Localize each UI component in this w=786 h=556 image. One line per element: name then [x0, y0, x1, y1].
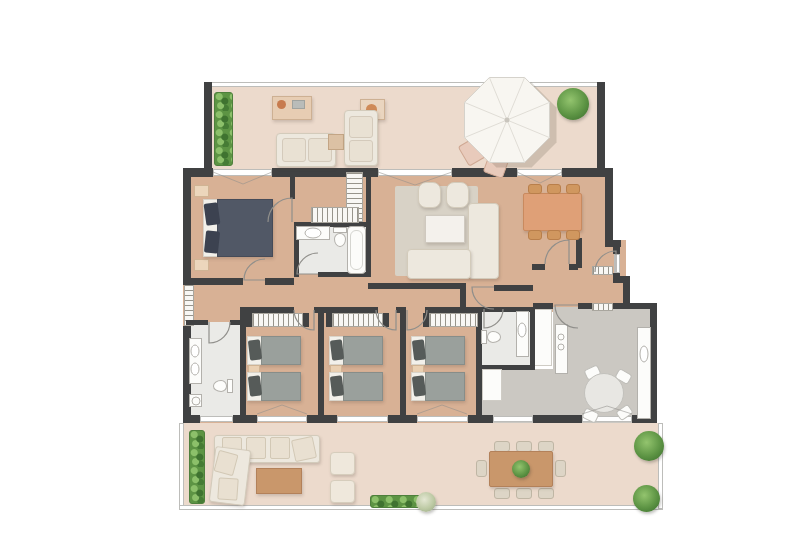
dining-chair-4	[528, 230, 542, 240]
wall-bot-3	[307, 415, 337, 423]
bd2-bedA-pillow	[248, 339, 262, 360]
terrace-top-floor	[205, 86, 605, 170]
dining-chair-5	[547, 230, 561, 240]
slider-bot-3	[337, 416, 388, 422]
wall-bot-4	[388, 415, 417, 423]
bed-master-pillow-1	[204, 202, 221, 226]
plant-bottom-right-2	[633, 485, 660, 512]
wall-mid-c	[562, 168, 605, 177]
slider-bot-1	[200, 416, 233, 422]
wall-bot-2	[233, 415, 257, 423]
coffee-table	[425, 215, 465, 243]
console-tray	[292, 100, 305, 109]
bd3-bedB-pillow	[330, 375, 344, 396]
closet-stub-4	[383, 313, 389, 327]
bd4-bedB-blanket	[425, 372, 465, 401]
wall-kitchen-right	[650, 303, 657, 423]
wall-master-bottom-a	[183, 278, 243, 285]
wall-hall-north-b	[494, 285, 533, 291]
closet-stub-2	[303, 313, 309, 327]
toilet-master	[333, 227, 347, 247]
bd2-bedB-blanket	[261, 372, 301, 401]
console-vase	[277, 100, 286, 109]
closet-bd3	[332, 313, 383, 327]
wall-living-divider	[366, 172, 371, 277]
dining-chair-6	[566, 230, 580, 240]
dining-chair-3	[566, 184, 580, 194]
wall-master-bottom-b	[265, 278, 294, 285]
kitchen-counter-left	[555, 324, 568, 374]
bathtub-inner	[350, 230, 363, 270]
out-coffee-table	[256, 468, 302, 494]
plant-bottom-right-1	[634, 431, 664, 461]
closet-master-b	[311, 207, 359, 223]
slider-bot-4	[417, 416, 468, 422]
kitchen-window	[592, 303, 613, 311]
centerpiece-plant	[512, 460, 530, 478]
closet-bd4	[429, 313, 478, 327]
wall-left-upper	[183, 168, 191, 282]
slider-bot-5	[493, 416, 533, 422]
wall-hall-jog	[460, 283, 466, 309]
wall-terrace-left	[204, 82, 212, 177]
slider-top-1	[213, 169, 272, 176]
wall-bd2-bd3	[318, 307, 324, 417]
wall-bath2-top-b	[230, 320, 242, 325]
bd3-bedA-blanket	[343, 336, 383, 365]
armchair-1	[418, 182, 441, 208]
out-chair-8	[555, 460, 566, 477]
slider-bot-2	[257, 416, 307, 422]
out-cushion-6	[217, 477, 238, 500]
bd4-bedA-pillow	[412, 339, 426, 360]
sofa-bottom	[407, 249, 471, 279]
plant-bottom-left-2	[416, 492, 436, 512]
lounge-cushion-2a	[349, 116, 373, 138]
bd4-bedA-blanket	[425, 336, 465, 365]
planter-top-left	[214, 92, 233, 166]
wall-bdtop-c	[396, 307, 405, 313]
wall-entry-right-a	[613, 240, 620, 254]
wall-bath3-right	[530, 307, 535, 367]
vanity-3	[516, 311, 529, 357]
planter-bottom-left	[189, 430, 205, 504]
lounge-cushion-2b	[349, 140, 373, 162]
out-cushion-4	[291, 436, 317, 462]
out-chair-5	[516, 488, 532, 499]
front-door-opening	[614, 254, 620, 273]
bed-master-pillow-2	[204, 230, 220, 253]
lounge-cushion-1a	[282, 138, 306, 162]
railing-top	[209, 82, 601, 87]
wall-right-upper	[605, 168, 613, 247]
vanity-master	[296, 226, 330, 240]
nightstand-1	[194, 185, 209, 197]
dining-chair-1	[528, 184, 542, 194]
closet-bd2	[252, 313, 303, 327]
wall-entry-vert	[576, 238, 582, 268]
wall-entry-right-c	[623, 276, 630, 309]
sofa-right	[468, 203, 499, 279]
wall-bd3-bd4	[400, 307, 406, 417]
kitchen-table	[584, 373, 624, 413]
plant-top-right	[557, 88, 589, 120]
slider-top-3	[517, 169, 562, 176]
washer	[189, 394, 202, 407]
wall-bot-5	[468, 415, 493, 423]
closet-entry	[592, 266, 613, 275]
toilet-3	[481, 330, 501, 344]
bd2-bedA-blanket	[261, 336, 301, 365]
wall-bath2-top-a	[186, 320, 208, 325]
dining-chair-2	[547, 184, 561, 194]
armchair-2	[446, 182, 469, 208]
wall-hall-north	[368, 283, 464, 289]
bd3-bedB-blanket	[343, 372, 383, 401]
lounge-side-table	[328, 134, 344, 150]
slider-top-2	[378, 169, 452, 176]
wall-entry-bottom-b	[578, 303, 592, 309]
railing-bottom-left	[179, 423, 184, 509]
wall-bot-6	[533, 415, 582, 423]
wall-terrace-right	[597, 82, 605, 177]
dining-table	[523, 193, 582, 231]
bd2-bedB-pillow	[248, 375, 262, 396]
toilet-left	[213, 379, 233, 393]
wall-bedroom-right	[290, 172, 295, 199]
bd4-bedB-pillow	[412, 375, 426, 396]
closet-strip	[534, 309, 552, 366]
apartment-floor-plan	[0, 0, 786, 556]
pouf-1	[330, 452, 355, 475]
bed-master-blanket	[217, 199, 273, 257]
floor-plan-canvas	[0, 0, 786, 556]
wall-entry-north-a	[532, 264, 545, 270]
out-chair-4	[494, 488, 510, 499]
out-cushion-3	[270, 437, 290, 459]
wall-bot-1	[183, 415, 200, 423]
vanity-left	[189, 338, 202, 384]
kitchen-counter-right	[637, 327, 651, 419]
out-chair-7	[476, 460, 487, 477]
out-chair-6	[538, 488, 554, 499]
nightstand-2	[194, 259, 209, 271]
bd3-bedA-pillow	[330, 339, 344, 360]
wall-entry-bottom-a	[533, 303, 553, 309]
pouf-2	[330, 480, 355, 503]
closet-3	[482, 369, 502, 401]
